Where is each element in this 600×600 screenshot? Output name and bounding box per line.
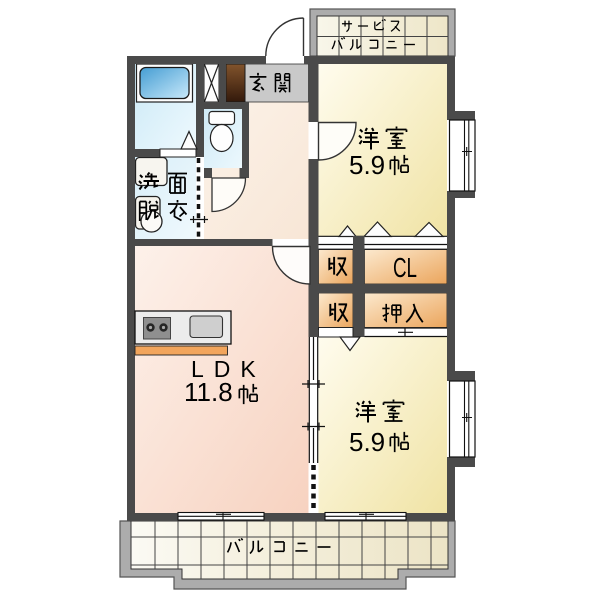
svg-text:11.8: 11.8: [184, 377, 233, 407]
svg-text:CL: CL: [393, 252, 417, 283]
svg-text:5.9: 5.9: [349, 150, 385, 180]
svg-text:5.9: 5.9: [349, 427, 385, 457]
